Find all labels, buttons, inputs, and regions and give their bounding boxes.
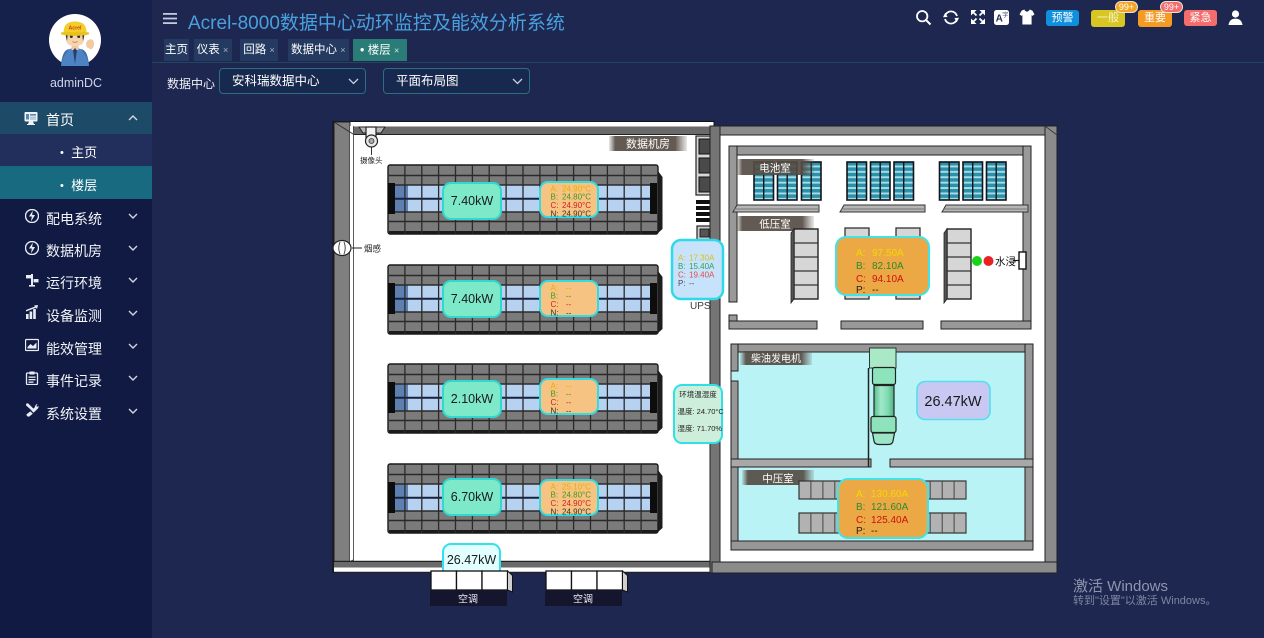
svg-text:B:82.10A: B:82.10A	[856, 261, 904, 272]
svg-text:湿度: 71.70%: 湿度: 71.70%	[678, 423, 723, 433]
svg-text:Acrel: Acrel	[69, 26, 83, 32]
svg-text:N:24.90°C: N:24.90°C	[551, 209, 592, 218]
svg-text:空调: 空调	[458, 593, 478, 606]
svg-text:摄像头: 摄像头	[360, 155, 383, 165]
svg-text:柴油发电机: 柴油发电机	[751, 352, 801, 365]
svg-text:N:24.90°C: N:24.90°C	[551, 507, 592, 516]
svg-text:A:97.50A: A:97.50A	[856, 248, 904, 259]
svg-text:6.70kW: 6.70kW	[451, 490, 494, 504]
svg-text:UPS: UPS	[690, 301, 711, 312]
svg-text:A:130.60A: A:130.60A	[856, 489, 909, 500]
svg-text:字: 字	[1002, 11, 1008, 19]
svg-text:7.40kW: 7.40kW	[451, 194, 494, 208]
svg-text:7.40kW: 7.40kW	[451, 292, 494, 306]
svg-text:26.47kW: 26.47kW	[924, 394, 982, 410]
svg-text:环境温湿度: 环境温湿度	[679, 389, 717, 399]
svg-text:温度: 24.70°C: 温度: 24.70°C	[678, 406, 725, 416]
svg-text:2.10kW: 2.10kW	[451, 392, 494, 406]
svg-text:水浸: 水浸	[995, 256, 1016, 268]
svg-text:中压室: 中压室	[762, 472, 794, 485]
svg-text:C:125.40A: C:125.40A	[856, 515, 909, 526]
svg-text:空调: 空调	[573, 593, 593, 606]
svg-text:数据机房: 数据机房	[626, 137, 670, 151]
svg-text:26.47kW: 26.47kW	[447, 553, 497, 567]
svg-text:低压室: 低压室	[759, 218, 791, 231]
svg-text:B:121.60A: B:121.60A	[856, 502, 909, 513]
svg-text:电池室: 电池室	[759, 162, 791, 175]
svg-text:C:94.10A: C:94.10A	[856, 274, 904, 285]
svg-text:烟感: 烟感	[364, 244, 382, 254]
